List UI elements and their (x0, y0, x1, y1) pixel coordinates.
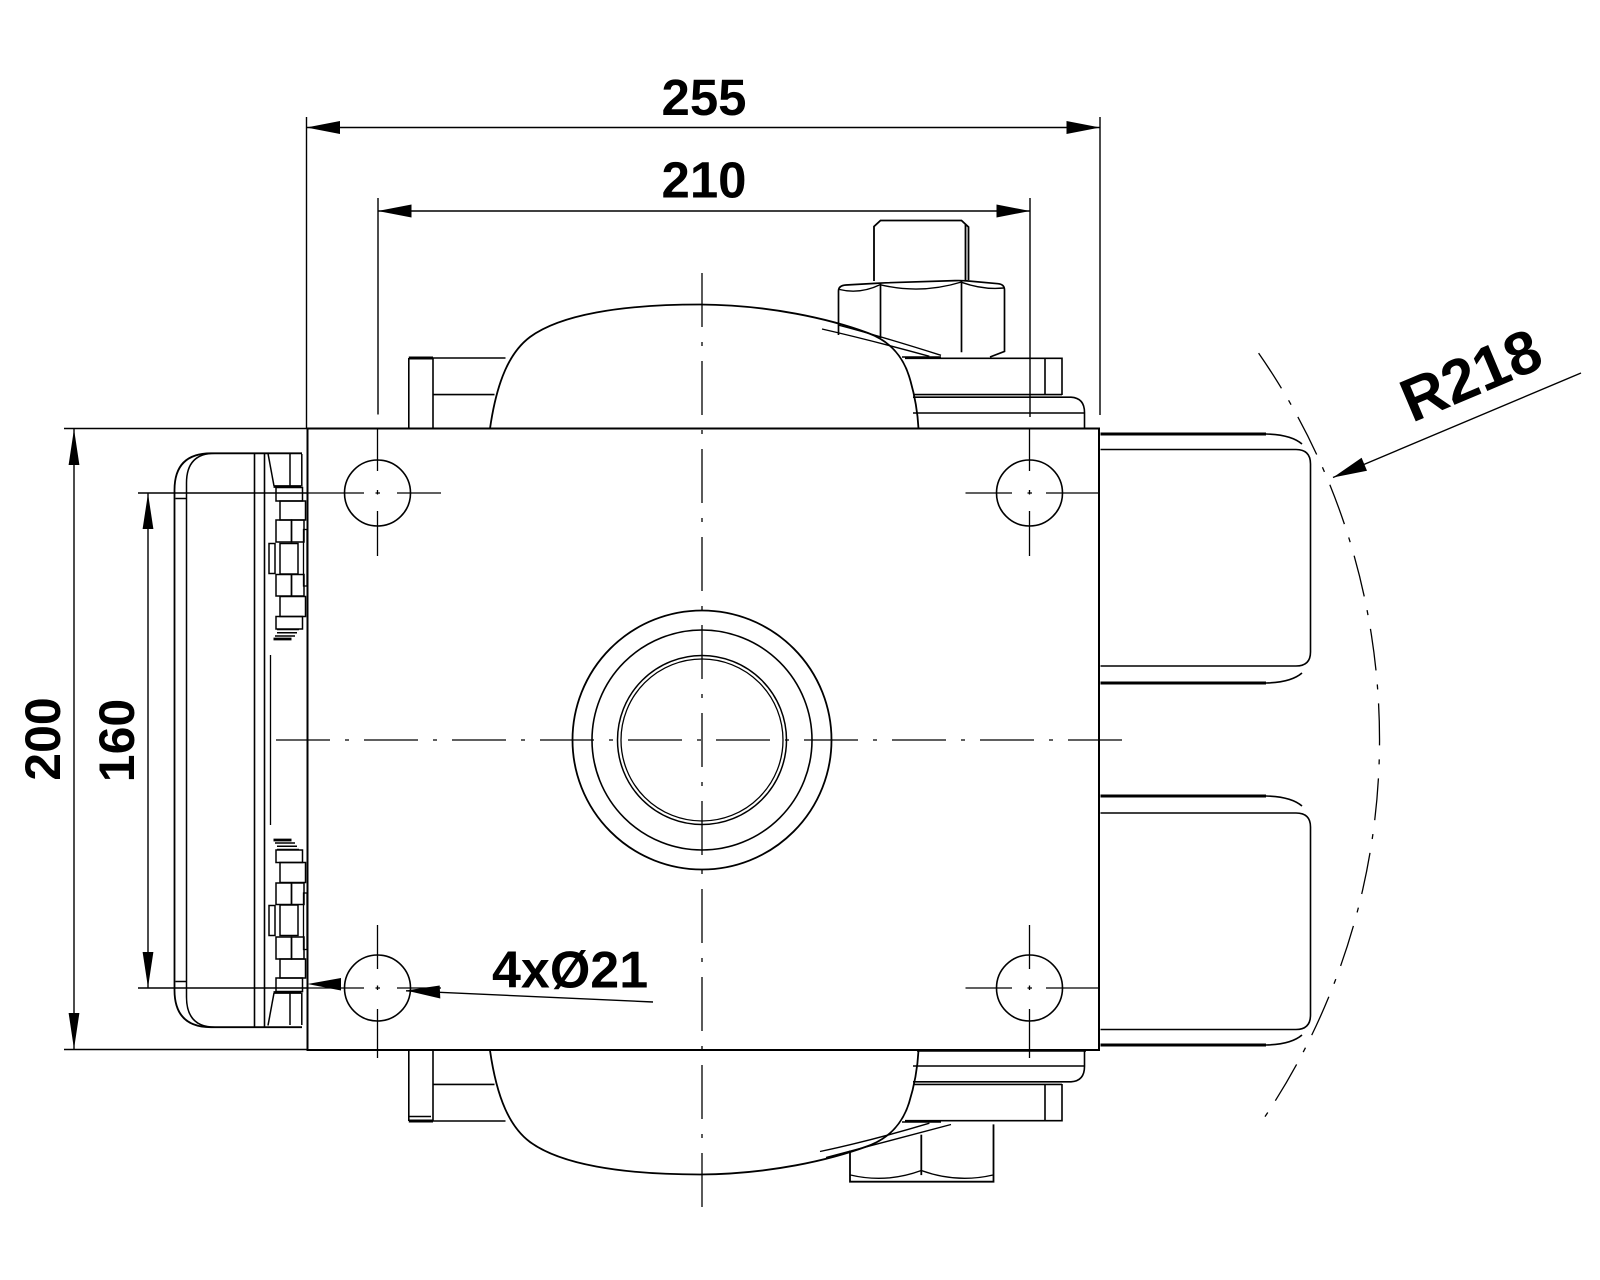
svg-text:255: 255 (661, 69, 746, 126)
svg-text:200: 200 (15, 697, 71, 780)
svg-text:160: 160 (89, 699, 145, 782)
svg-text:210: 210 (661, 152, 746, 209)
svg-text:4xØ21: 4xØ21 (492, 942, 648, 1000)
